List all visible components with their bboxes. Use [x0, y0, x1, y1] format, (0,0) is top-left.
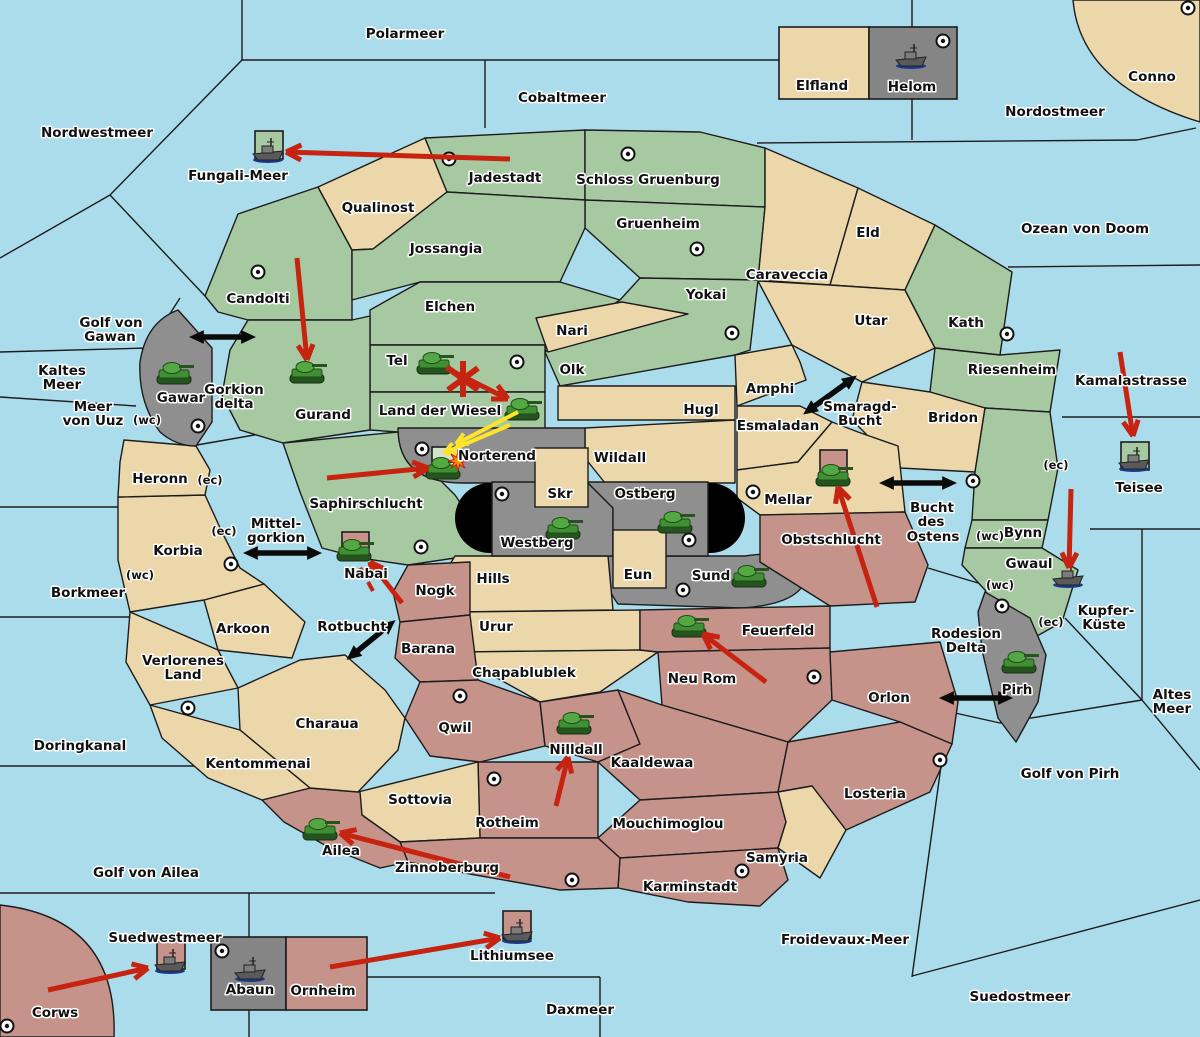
label-candolti: Candolti [226, 291, 289, 307]
label-coast-note: (wc) [986, 578, 1014, 592]
label-mouchimoglou: Mouchimoglou [612, 816, 723, 832]
label-ailea: Ailea [322, 843, 360, 859]
label-elfland: Elfland [796, 78, 848, 94]
label-rodesion-2: Delta [946, 640, 987, 656]
label-mellar: Mellar [764, 492, 812, 508]
label-chapablublek: Chapablublek [472, 665, 577, 681]
label-sund: Sund [692, 568, 731, 584]
label-mittel-gorkion-2: gorkion [247, 530, 305, 546]
label-ostberg: Ostberg [614, 486, 675, 502]
label-ornheim: Ornheim [290, 983, 355, 999]
label-gruenheim: Gruenheim [616, 216, 700, 232]
city-marker-icon [566, 874, 579, 887]
city-marker-icon [1, 1020, 14, 1033]
city-marker-icon [726, 327, 739, 340]
label-amphi: Amphi [746, 381, 794, 397]
label-losteria: Losteria [844, 786, 906, 802]
label-gwaul: Gwaul [1006, 556, 1053, 572]
label-utar: Utar [854, 313, 888, 329]
region-schloss-gruenburg[interactable] [585, 130, 765, 207]
city-marker-icon [225, 558, 238, 571]
label-ozean-von-doom: Ozean von Doom [1021, 221, 1149, 237]
city-marker-icon [996, 600, 1009, 613]
city-marker-icon [747, 486, 760, 499]
label-nari: Nari [556, 323, 588, 339]
label-jadestadt: Jadestadt [468, 170, 542, 186]
label-cobaltmeer: Cobaltmeer [518, 90, 606, 106]
label-conno: Conno [1128, 69, 1176, 85]
label-pirh: Pirh [1002, 682, 1033, 698]
label-nordwestmeer: Nordwestmeer [41, 125, 153, 141]
label-coast-note: (ec) [1038, 615, 1063, 629]
label-schloss-gruenburg: Schloss Gruenburg [576, 172, 720, 188]
label-bucht-3: Ostens [907, 529, 960, 545]
label-coast-note: (wc) [976, 529, 1004, 543]
label-samyria: Samyria [746, 850, 808, 866]
city-marker-icon [454, 690, 467, 703]
label-borkmeer: Borkmeer [51, 585, 126, 601]
city-marker-icon [677, 584, 690, 597]
label-gurand: Gurand [295, 407, 351, 423]
label-charaua: Charaua [295, 716, 358, 732]
city-marker-icon [622, 148, 635, 161]
label-nilldall: Nilldall [549, 742, 602, 758]
label-verlorenes-2: Land [165, 667, 202, 683]
label-elchen: Elchen [425, 299, 475, 315]
label-kaltes-meer-2: Meer [43, 377, 82, 393]
city-marker-icon [182, 702, 195, 715]
city-marker-icon [415, 541, 428, 554]
label-polarmeer: Polarmeer [366, 26, 445, 42]
label-korbia: Korbia [153, 543, 203, 559]
label-olk: Olk [559, 362, 585, 378]
label-gorkion-2: delta [214, 396, 253, 412]
label-yokai: Yokai [685, 287, 727, 303]
label-urur: Urur [479, 619, 513, 635]
label-sottovia: Sottovia [388, 792, 452, 808]
label-suedostmeer: Suedostmeer [970, 989, 1071, 1005]
city-marker-icon [416, 443, 429, 456]
label-wildall: Wildall [594, 450, 646, 466]
city-marker-icon [937, 35, 950, 48]
label-froidevaux: Froidevaux-Meer [781, 932, 909, 948]
label-rotheim: Rotheim [475, 815, 539, 831]
label-obstschlucht: Obstschlucht [781, 532, 881, 548]
city-marker-icon [1001, 328, 1014, 341]
label-smaragd-2: Bucht [838, 413, 883, 429]
label-golf-von-ailea: Golf von Ailea [93, 865, 199, 881]
label-karminstadt: Karminstadt [643, 879, 738, 895]
label-corws: Corws [32, 1005, 78, 1021]
label-barana: Barana [401, 641, 455, 657]
label-coast-note: (ec) [211, 524, 236, 538]
label-orlon: Orlon [868, 690, 910, 706]
label-qualinost: Qualinost [342, 200, 415, 216]
label-rotbucht: Rotbucht [317, 619, 387, 635]
city-marker-icon [934, 754, 947, 767]
label-riesenheim: Riesenheim [968, 362, 1056, 378]
label-coast-note: (ec) [1043, 458, 1068, 472]
label-skr: Skr [547, 486, 573, 502]
label-kupfer-2: Küste [1082, 617, 1125, 633]
map-canvas: PolarmeerNordwestmeerCobaltmeerNordostme… [0, 0, 1200, 1037]
label-qwil: Qwil [438, 720, 471, 736]
label-daxmeer: Daxmeer [546, 1002, 614, 1018]
label-fungali-meer: Fungali-Meer [188, 168, 288, 184]
label-lithiumsee: Lithiumsee [470, 948, 554, 964]
label-coast-note: (wc) [133, 413, 161, 427]
label-suedwestmeer: Suedwestmeer [108, 930, 222, 946]
city-marker-icon [683, 534, 696, 547]
label-jossangia: Jossangia [409, 241, 483, 257]
label-bridon: Bridon [928, 410, 978, 426]
ornheim-box[interactable] [286, 937, 367, 1010]
label-teisee: Teisee [1115, 480, 1163, 496]
label-land-der-wiesel: Land der Wiesel [379, 403, 501, 419]
label-nordostmeer: Nordostmeer [1005, 104, 1105, 120]
label-hugl: Hugl [683, 402, 718, 418]
label-hills: Hills [476, 571, 509, 587]
label-kamalastrasse: Kamalastrasse [1075, 373, 1187, 389]
label-helom: Helom [888, 79, 936, 95]
city-marker-icon [808, 671, 821, 684]
city-marker-icon [511, 356, 524, 369]
wargame-map: PolarmeerNordwestmeerCobaltmeerNordostme… [0, 0, 1200, 1037]
label-golf-von-gawan-2: Gawan [84, 329, 135, 345]
label-bynn: Bynn [1004, 525, 1042, 541]
label-bucht-2: des [918, 514, 945, 530]
city-marker-icon [216, 945, 229, 958]
region-heronn[interactable] [118, 440, 210, 497]
label-golf-von-pirh: Golf von Pirh [1021, 766, 1120, 782]
label-kaaldewaa: Kaaldewaa [611, 755, 694, 771]
city-marker-icon [967, 475, 980, 488]
city-marker-icon [736, 865, 749, 878]
label-norterend: Norterend [458, 448, 536, 464]
city-marker-icon [488, 773, 501, 786]
city-marker-icon [1182, 2, 1195, 15]
label-eld: Eld [856, 225, 880, 241]
city-marker-icon [691, 243, 704, 256]
label-feuerfeld: Feuerfeld [742, 623, 815, 639]
label-saphirschlucht: Saphirschlucht [309, 496, 423, 512]
label-arkoon: Arkoon [216, 621, 270, 637]
label-esmaladan: Esmaladan [737, 418, 820, 434]
label-coast-note: (wc) [126, 568, 154, 582]
label-coast-note: (ec) [197, 473, 222, 487]
label-zinnoberburg: Zinnoberburg [395, 860, 499, 876]
city-marker-icon [252, 266, 265, 279]
label-caraveccia: Caraveccia [746, 267, 828, 283]
label-kentommenai: Kentommenai [205, 756, 310, 772]
label-gawar: Gawar [157, 390, 206, 406]
label-abaun: Abaun [226, 982, 274, 998]
label-altes-2: Meer [1153, 701, 1192, 717]
label-nogk: Nogk [415, 583, 455, 599]
label-doringkanal: Doringkanal [34, 738, 126, 754]
label-nabai: Nabai [344, 566, 388, 582]
label-westberg: Westberg [500, 535, 573, 551]
city-marker-icon [496, 488, 509, 501]
label-meer-von-uuz-2: von Uuz [63, 413, 124, 429]
label-heronn: Heronn [132, 471, 188, 487]
label-kath: Kath [948, 315, 984, 331]
city-marker-icon [192, 420, 205, 433]
label-neu-rom: Neu Rom [668, 671, 737, 687]
label-eun: Eun [624, 567, 652, 583]
label-tel: Tel [386, 353, 407, 369]
